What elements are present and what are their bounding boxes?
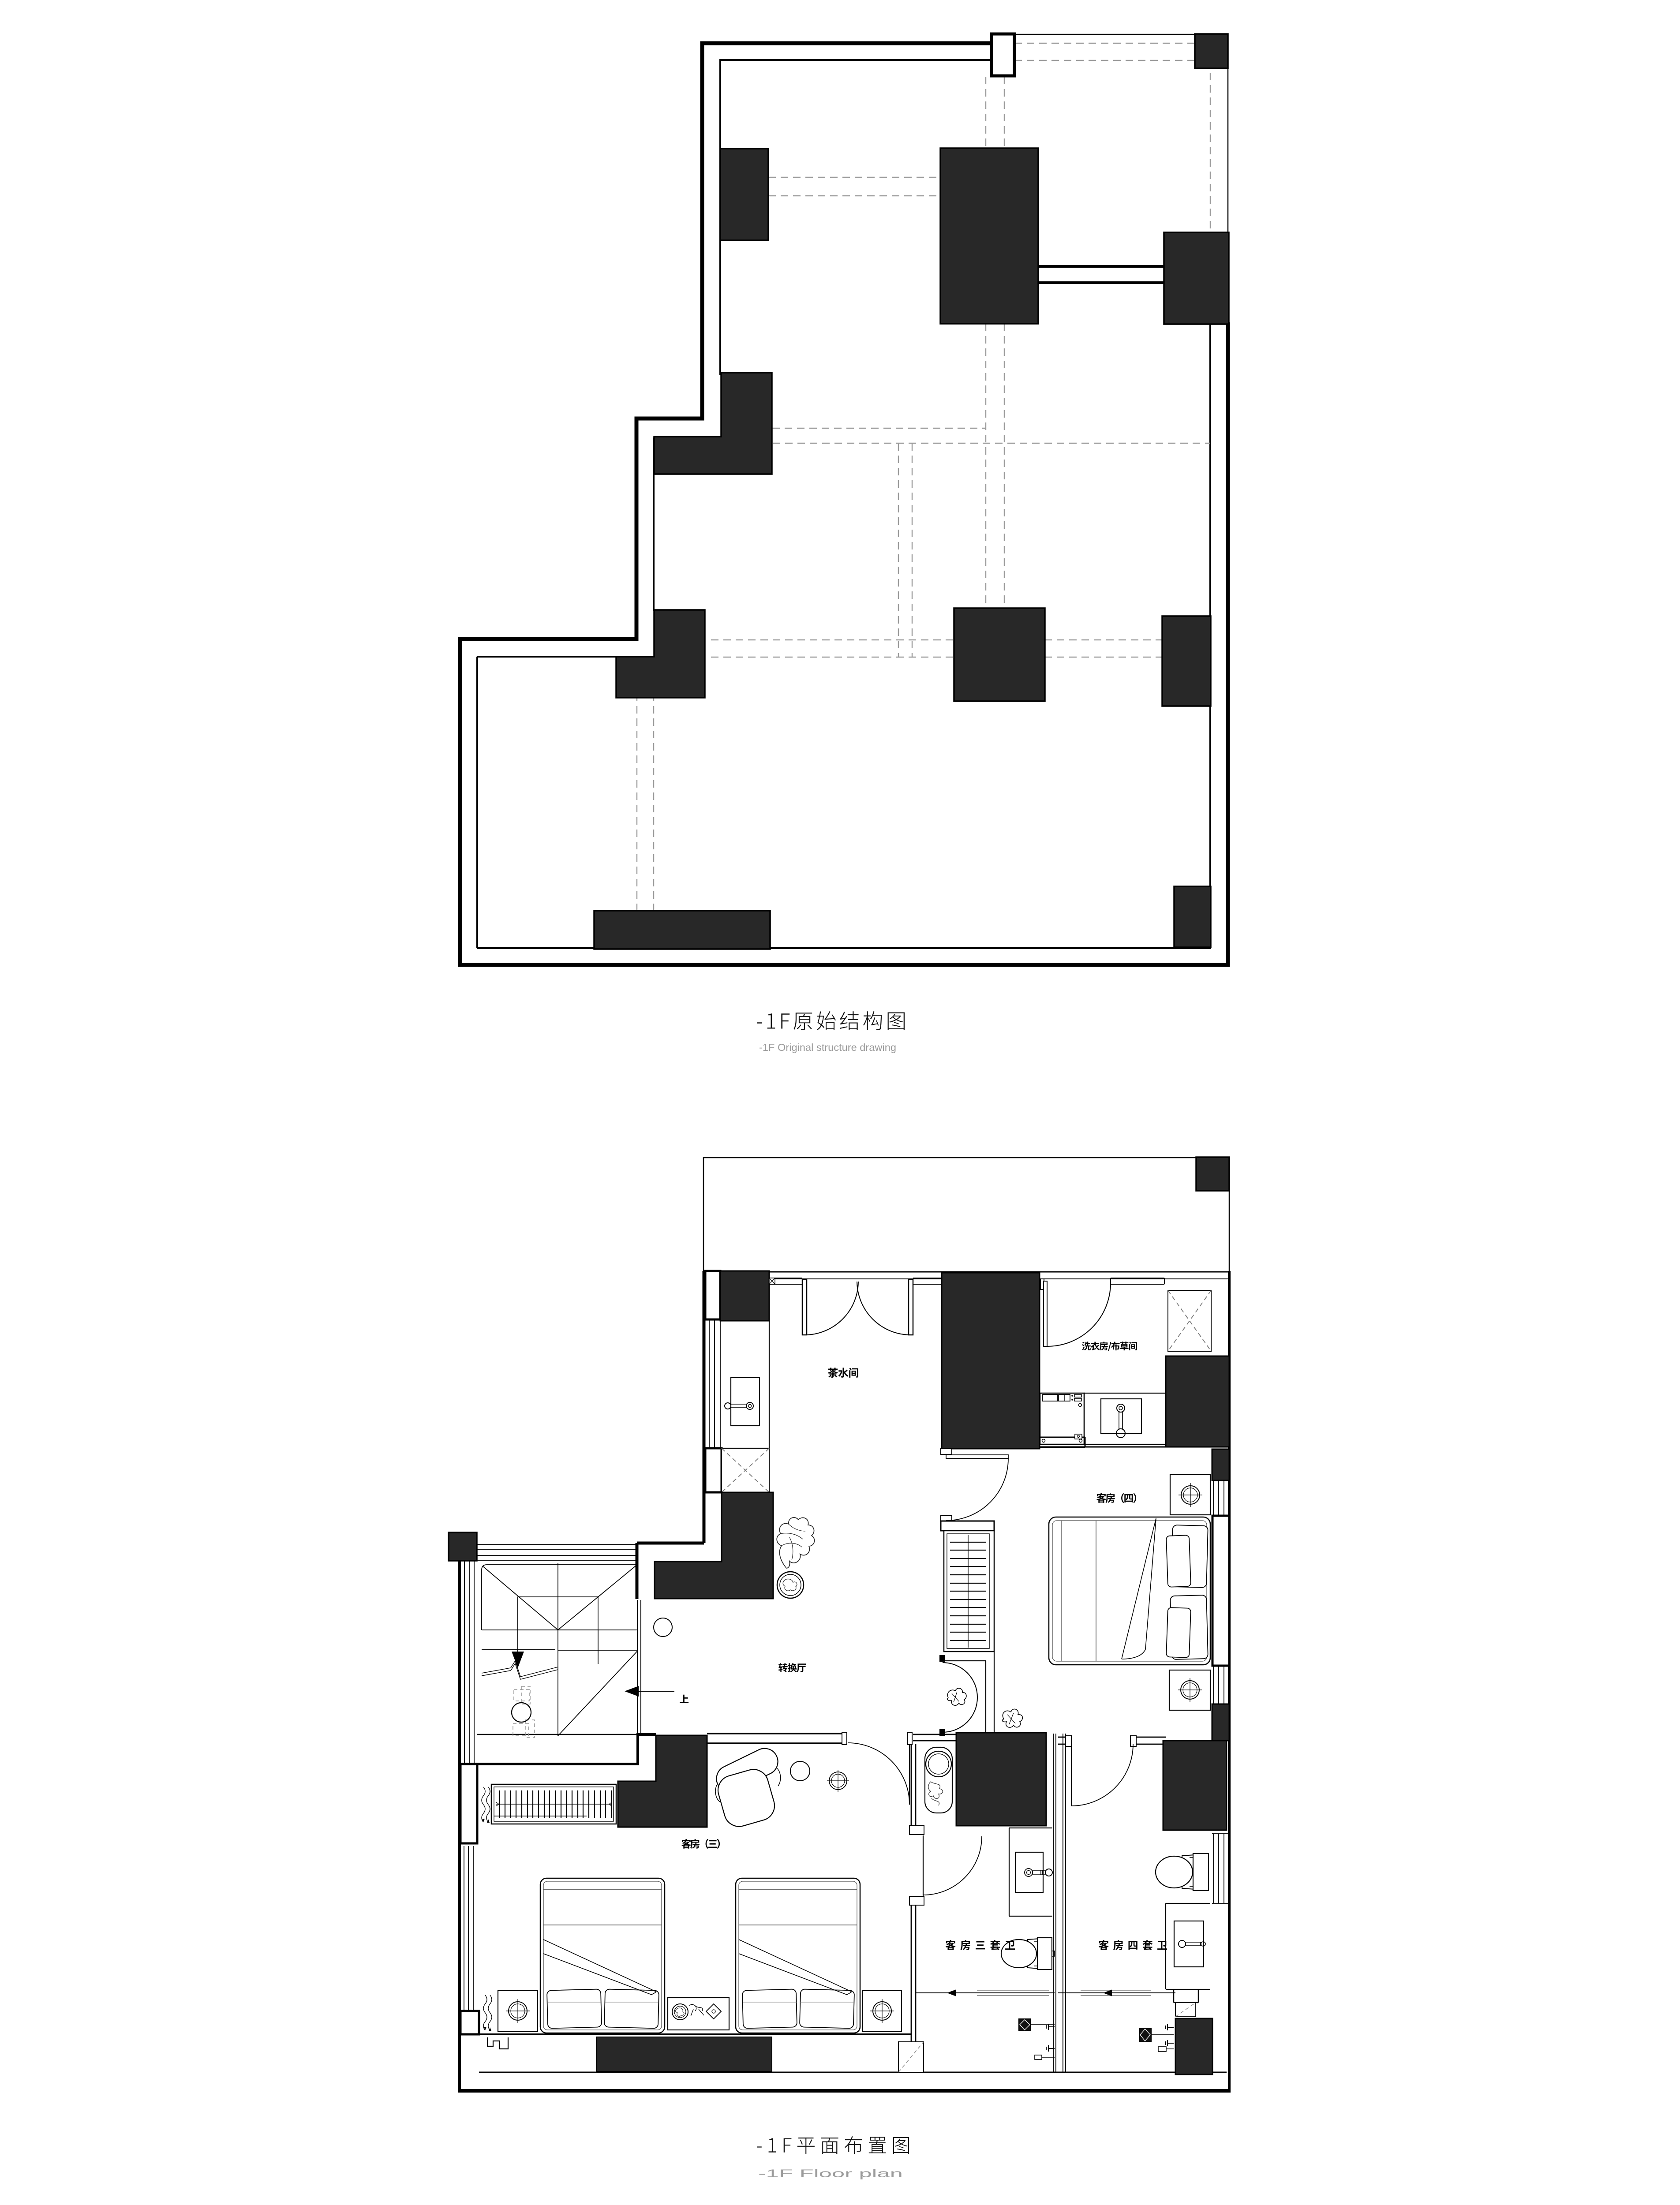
svg-text:-1F Original structure drawing: -1F Original structure drawing (759, 1042, 896, 1053)
svg-text:-1F Floor plan: -1F Floor plan (758, 2168, 903, 2180)
